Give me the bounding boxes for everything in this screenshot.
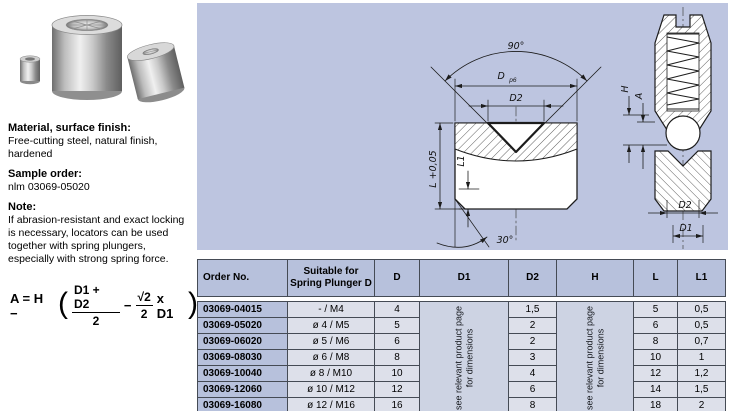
l-cell: 12: [634, 366, 678, 382]
sample-order-value: nlm 03069-05020: [8, 181, 198, 194]
order-no-cell: 03069-12060: [198, 382, 288, 398]
dim-label-l1: L1: [456, 155, 467, 166]
h-note-text: see relevant product page for dimensions: [585, 306, 606, 410]
formula-fraction-2: √2 2: [136, 290, 153, 321]
d-cell: 5: [375, 318, 420, 334]
d-cell: 6: [375, 334, 420, 350]
d1-note-text: see relevant product page for dimensions: [454, 306, 475, 410]
table-body: 03069-04015 - / M4 4 see relevant produc…: [197, 301, 726, 411]
locator-section-view: 90° D p6 D2 L +0,05: [428, 41, 601, 247]
plunger-cell: ø 12 / M16: [288, 398, 375, 411]
description-text: Material, surface finish: Free-cutting s…: [8, 122, 198, 266]
plunger-cell: ø 5 / M6: [288, 334, 375, 350]
order-no-cell: 03069-08030: [198, 350, 288, 366]
material-body: Free-cutting steel, natural finish, hard…: [8, 135, 198, 161]
formula-open-paren: (: [58, 289, 68, 319]
l1-cell: 0,7: [678, 334, 726, 350]
note-body: If abrasion-resistant and exact locking …: [8, 214, 198, 266]
l-cell: 5: [634, 302, 678, 318]
plunger-cell: ø 4 / M5: [288, 318, 375, 334]
table-header: Order No. Suitable for Spring Plunger D …: [197, 259, 726, 297]
d-cell: 12: [375, 382, 420, 398]
d-cell: 4: [375, 302, 420, 318]
plunger-cell: - / M4: [288, 302, 375, 318]
big-locator-photo: [52, 16, 122, 101]
formula-lhs: A = H −: [10, 291, 54, 321]
d2-cell: 3: [509, 350, 557, 366]
dim-label-d-p6: D p6: [497, 66, 516, 84]
d-cell: 8: [375, 350, 420, 366]
order-no-cell: 03069-05020: [198, 318, 288, 334]
order-no-cell: 03069-04015: [198, 302, 288, 318]
l-cell: 6: [634, 318, 678, 334]
technical-drawing-panel: 90° D p6 D2 L +0,05: [197, 3, 728, 250]
dim-label-a: A: [634, 93, 645, 101]
medium-locator-photo: [126, 39, 186, 106]
order-no-cell: 03069-16080: [198, 398, 288, 411]
order-no-cell: 03069-06020: [198, 334, 288, 350]
l-cell: 10: [634, 350, 678, 366]
dim-label-90deg: 90°: [508, 41, 525, 52]
l1-cell: 1: [678, 350, 726, 366]
product-photo: [8, 2, 190, 115]
dim-label-d1-right: D1: [679, 223, 692, 234]
d2-cell: 8: [509, 398, 557, 411]
sample-order-heading: Sample order:: [8, 168, 198, 181]
header-d: D: [375, 260, 420, 297]
plunger-cell: ø 8 / M10: [288, 366, 375, 382]
technical-drawing: 90° D p6 D2 L +0,05: [197, 3, 728, 250]
header-l1: L1: [678, 260, 726, 297]
small-locator-photo: [20, 56, 40, 84]
formula-minus: −: [124, 298, 132, 313]
catalog-page: Material, surface finish: Free-cutting s…: [0, 0, 730, 411]
header-l: L: [634, 260, 678, 297]
l-cell: 18: [634, 398, 678, 411]
l-cell: 14: [634, 382, 678, 398]
d2-cell: 4: [509, 366, 557, 382]
header-plunger: Suitable for Spring Plunger D: [288, 260, 375, 297]
dim-label-d2-right: D2: [678, 200, 691, 211]
dim-label-h: H: [620, 85, 631, 92]
l1-cell: 0,5: [678, 318, 726, 334]
formula-times-d1: x D1: [157, 291, 184, 321]
header-h: H: [557, 260, 634, 297]
plunger-cell: ø 6 / M8: [288, 350, 375, 366]
header-d1: D1: [420, 260, 509, 297]
table-row: 03069-04015 - / M4 4 see relevant produc…: [198, 302, 726, 318]
d-cell: 16: [375, 398, 420, 411]
l1-cell: 0,5: [678, 302, 726, 318]
d2-cell: 6: [509, 382, 557, 398]
d1-note-cell: see relevant product page for dimensions: [420, 302, 509, 411]
header-order-no: Order No.: [198, 260, 288, 297]
h-note-cell: see relevant product page for dimensions: [557, 302, 634, 411]
note-heading: Note:: [8, 201, 198, 214]
formula: A = H − ( D1 + D2 2 − √2 2 x D1 ): [10, 283, 198, 328]
dimension-table: Order No. Suitable for Spring Plunger D …: [197, 259, 728, 411]
d-cell: 10: [375, 366, 420, 382]
l-cell: 8: [634, 334, 678, 350]
left-column: Material, surface finish: Free-cutting s…: [8, 0, 198, 328]
plunger-cell: ø 10 / M12: [288, 382, 375, 398]
spring-plunger-view: H A D2 D1: [620, 7, 718, 249]
header-d2: D2: [509, 260, 557, 297]
l1-cell: 1,2: [678, 366, 726, 382]
dim-label-30deg: 30°: [497, 235, 514, 246]
d2-cell: 2: [509, 318, 557, 334]
l1-cell: 2: [678, 398, 726, 411]
material-heading: Material, surface finish:: [8, 122, 198, 135]
d2-cell: 2: [509, 334, 557, 350]
dim-label-l: L +0,05: [428, 150, 439, 187]
formula-fraction-1: D1 + D2 2: [72, 283, 120, 328]
dim-label-d2: D2: [509, 93, 522, 104]
order-no-cell: 03069-10040: [198, 366, 288, 382]
d2-cell: 1,5: [509, 302, 557, 318]
l1-cell: 1,5: [678, 382, 726, 398]
